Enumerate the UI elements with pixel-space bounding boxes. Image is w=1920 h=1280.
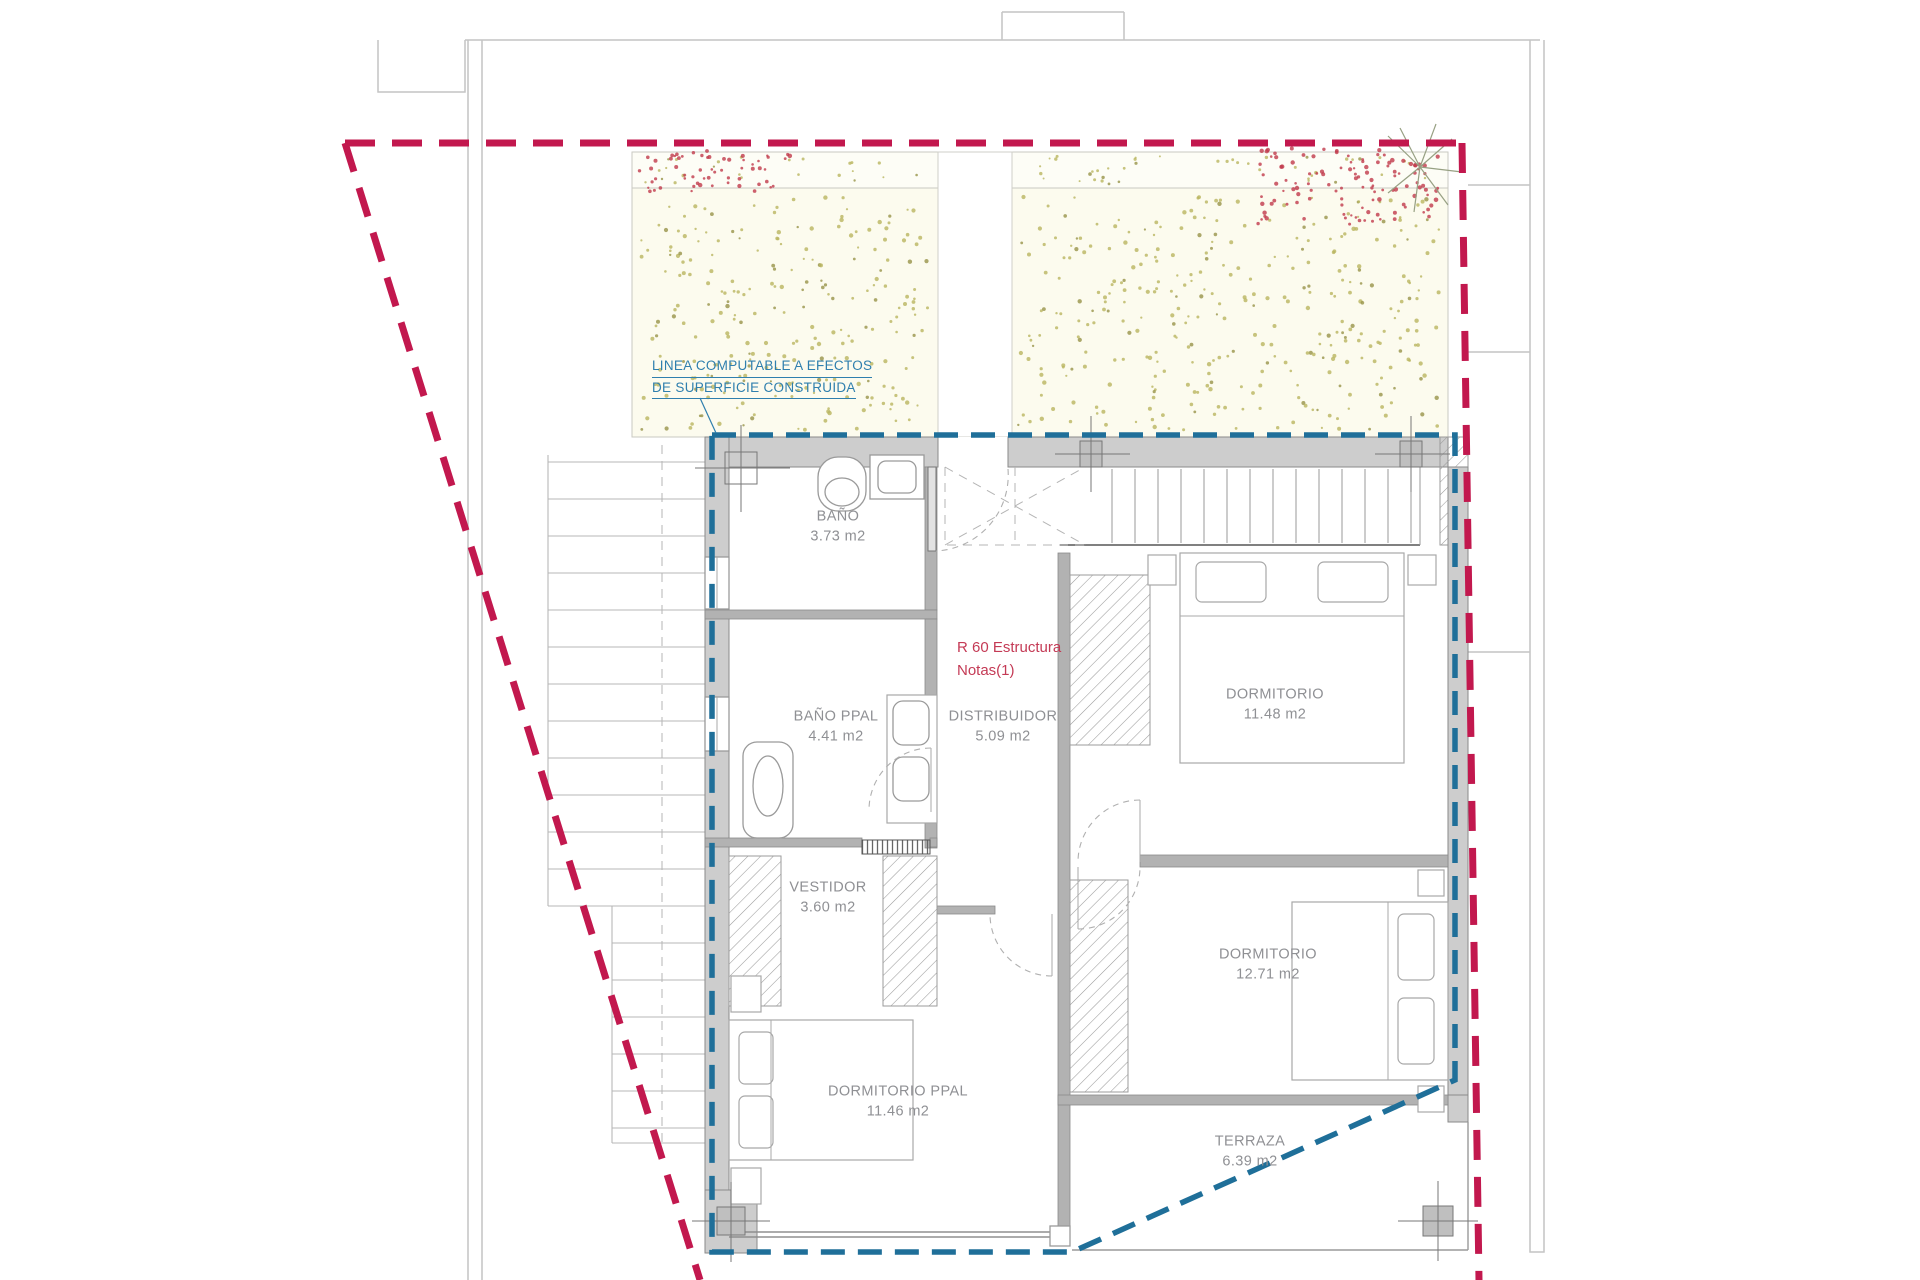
- window-left-1: [705, 557, 729, 609]
- wardrobe-dormitorio-1: [1070, 575, 1150, 745]
- computable-line-note: LINEA COMPUTABLE A EFECTOS DE SUPERFICIE…: [652, 356, 872, 399]
- structure-note: R 60 Estructura Notas(1): [957, 636, 1061, 683]
- room-label-dormitorio-ppal: DORMITORIO PPAL11.46 m2: [828, 1082, 968, 1121]
- entry-door-leaf: [928, 467, 936, 551]
- room-label-bano: BAÑO3.73 m2: [810, 507, 865, 546]
- room-label-terraza: TERRAZA6.39 m2: [1215, 1132, 1285, 1171]
- room-label-dormitorio-1: DORMITORIO11.48 m2: [1226, 685, 1324, 724]
- wardrobe-vestidor-right: [883, 856, 937, 1006]
- wardrobe-dormitorio-2: [1070, 880, 1128, 1092]
- room-label-distribuidor: DISTRIBUIDOR5.09 m2: [949, 707, 1058, 746]
- floor-plan-page: LINEA COMPUTABLE A EFECTOS DE SUPERFICIE…: [0, 0, 1920, 1280]
- bed-dormitorio-1: [1148, 553, 1436, 763]
- window-left-2: [705, 697, 729, 751]
- sliding-door-symbol: [862, 840, 930, 854]
- bed-dormitorio-2: [1292, 870, 1448, 1112]
- room-label-bano-ppal: BAÑO PPAL4.41 m2: [794, 707, 879, 746]
- room-label-vestidor: VESTIDOR3.60 m2: [789, 878, 866, 917]
- entry-path: [938, 152, 1012, 437]
- room-label-dormitorio-2: DORMITORIO12.71 m2: [1219, 945, 1317, 984]
